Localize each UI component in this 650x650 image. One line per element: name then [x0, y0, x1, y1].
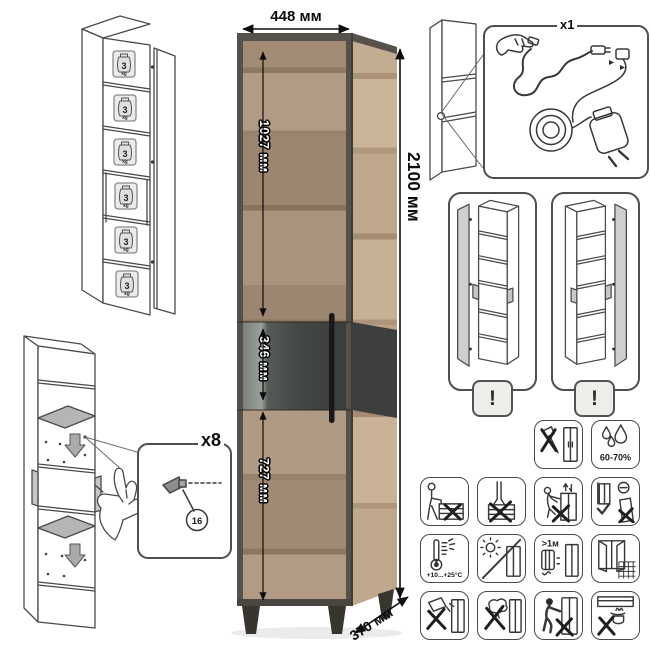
svg-text:kg: kg: [124, 291, 130, 296]
svg-text:60-70%: 60-70%: [600, 452, 631, 462]
cable-connectors: [591, 46, 629, 70]
cabinet-front-face: [237, 33, 352, 606]
temperature-range-tile: +10...+25°C: [420, 534, 469, 583]
no-sharp-impact-icon: [537, 423, 580, 466]
main-cabinet-render: [230, 28, 402, 640]
no-dragging-icon: [537, 594, 580, 637]
lighting-cabinet-drawing: [424, 16, 482, 188]
no-standing-icon: [480, 480, 523, 523]
weight-badge: 3 kg: [114, 139, 136, 165]
no-direct-sunlight-tile: [477, 534, 526, 583]
svg-text:kg: kg: [123, 203, 129, 208]
no-heat-below-icon: [594, 594, 637, 637]
hand-with-connector: [497, 35, 539, 55]
humidity-range-icon: 60-70%: [594, 423, 637, 466]
power-adapter: [530, 59, 630, 166]
svg-text:kg: kg: [121, 71, 127, 76]
lighting-kit-art: [485, 27, 643, 173]
temperature-range-icon: +10...+25°C: [423, 537, 466, 580]
lower-door-dimension-label: 727 мм: [257, 458, 271, 503]
no-liquids-tile: [420, 591, 469, 640]
part-number: 16: [192, 516, 203, 527]
no-climbing-icon: [537, 480, 580, 523]
no-heat-below-tile: [591, 591, 640, 640]
no-liquids-icon: [423, 594, 466, 637]
svg-text:kg: kg: [123, 247, 129, 252]
svg-text:3: 3: [122, 105, 127, 115]
no-sharp-impact-tile: [534, 420, 583, 469]
no-sitting-icon: [423, 480, 466, 523]
door-handle: [329, 313, 335, 423]
no-direct-sunlight-icon: [480, 537, 523, 580]
connection-point: [438, 113, 445, 120]
small-cabinet-front: [442, 20, 476, 172]
svg-text:3: 3: [122, 149, 127, 159]
svg-text:>1м: >1м: [542, 539, 559, 549]
cabinet-side-panel: [82, 29, 103, 303]
weight-badge: 3 kg: [114, 95, 136, 121]
heat-distance-icon: >1м: [537, 537, 580, 580]
no-standing-tile: [477, 477, 526, 526]
svg-text:kg: kg: [122, 159, 128, 164]
weight-badge: 3 kg: [115, 183, 137, 209]
no-wet-cleaning-icon: [480, 594, 523, 637]
carcass-side: [507, 206, 518, 364]
warning-exclamation-icon: !: [591, 387, 598, 411]
svg-text:+10...+25°C: +10...+25°C: [427, 571, 463, 579]
door-panel: [458, 204, 469, 366]
svg-text:3: 3: [123, 193, 128, 203]
door-option-left-panel: [448, 192, 537, 391]
warning-badge-left: !: [472, 380, 513, 417]
width-dimension-label: 448 мм: [237, 8, 355, 25]
heat-distance-tile: >1м: [534, 534, 583, 583]
middle-section-dimension-label: 346 мм: [257, 336, 271, 381]
anchor-to-wall-tile: [591, 477, 640, 526]
door-panel: [615, 204, 626, 366]
shelf-support-quantity: x8: [198, 431, 224, 449]
shelf-support-art: 16: [139, 445, 226, 553]
svg-text:3: 3: [121, 61, 126, 71]
humidity-range-tile: 60-70%: [591, 420, 640, 469]
cabinet-side-face: [352, 33, 397, 606]
door-option-right-panel: [551, 192, 640, 391]
warning-exclamation-icon: !: [489, 387, 496, 411]
door-right-cabinet-drawing: [553, 194, 634, 385]
shelf-load-cabinet-drawing: 3 kg 3 kg 3 kg 3 kg: [50, 12, 182, 320]
no-sitting-tile: [420, 477, 469, 526]
shelf-support-panel: x8 16: [137, 443, 232, 559]
weight-badge: 3 kg: [115, 227, 137, 253]
height-dimension-label: 2100 мм: [403, 152, 424, 222]
svg-text:kg: kg: [122, 115, 128, 120]
no-climbing-tile: [534, 477, 583, 526]
lighting-kit-panel: x1: [483, 25, 649, 179]
no-wet-cleaning-tile: [477, 591, 526, 640]
upper-door-dimension-label: 1027 мм: [257, 120, 271, 173]
instruction-sheet: 3 kg 3 kg 3 kg 3 kg: [0, 0, 650, 650]
lighting-kit-quantity: x1: [557, 18, 577, 31]
anchor-to-wall-icon: [594, 480, 637, 523]
svg-text:3: 3: [123, 237, 128, 247]
glass-section-side: [352, 322, 397, 418]
weight-badge: 3 kg: [116, 271, 138, 297]
svg-text:3: 3: [124, 281, 129, 291]
warning-badge-right: !: [574, 380, 615, 417]
ventilation-icon: [594, 537, 637, 580]
small-cabinet-side: [430, 20, 442, 180]
door-left-cabinet-drawing: [450, 194, 531, 385]
weight-badge: 3 kg: [113, 51, 135, 77]
carcass-side: [565, 206, 576, 364]
ventilation-tile: [591, 534, 640, 583]
led-cable: [514, 49, 592, 95]
no-dragging-tile: [534, 591, 583, 640]
